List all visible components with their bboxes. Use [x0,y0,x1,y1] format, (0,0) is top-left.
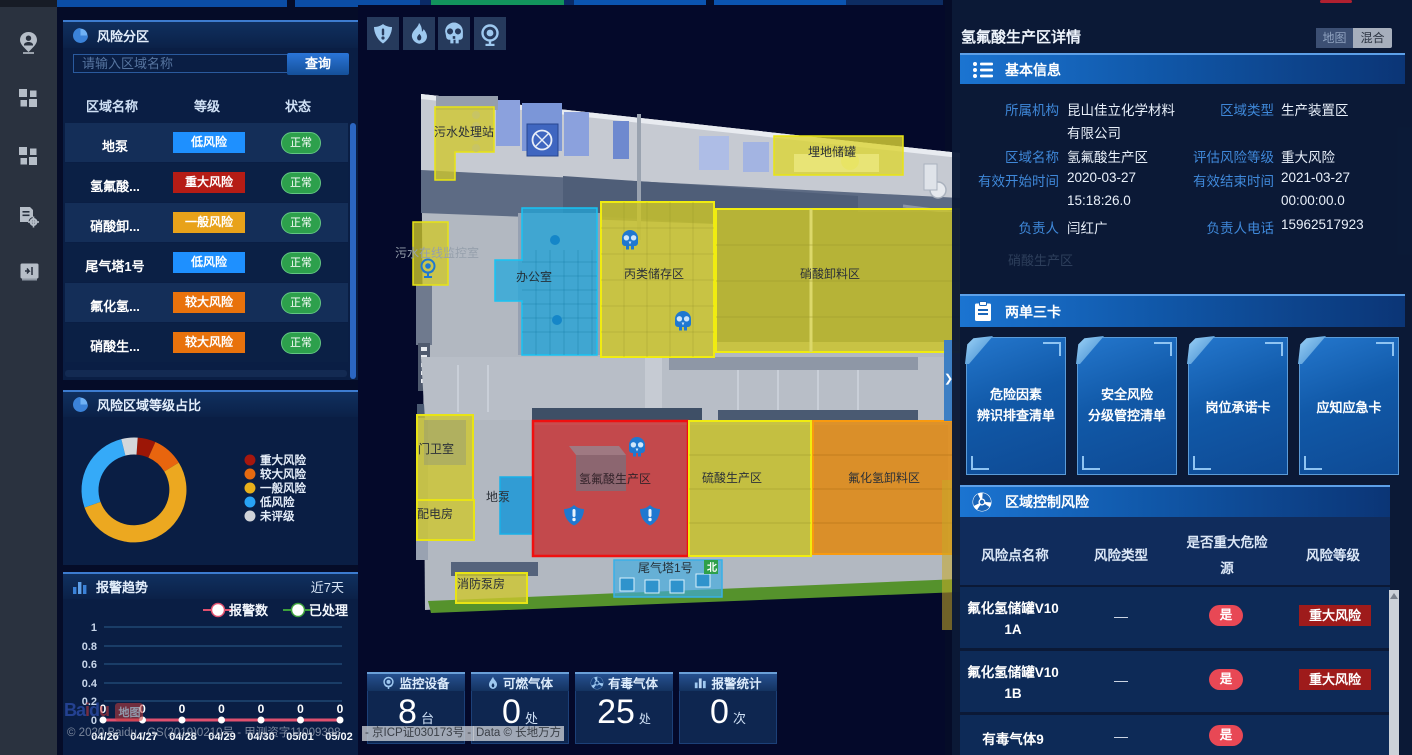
svg-text:较大风险: 较大风险 [260,467,306,481]
svg-text:未评级: 未评级 [259,509,295,523]
svg-text:0.8: 0.8 [82,641,97,653]
svg-text:低风险: 低风险 [259,495,295,509]
svg-text:消防泵房: 消防泵房 [457,576,505,591]
svg-text:一般风险: 一般风险 [260,481,306,495]
svg-text:硫酸生产区: 硫酸生产区 [702,470,762,485]
svg-text:丙类储存区: 丙类储存区 [624,266,684,281]
svg-text:污水处理站: 污水处理站 [434,125,494,139]
svg-text:氢氟酸生产区: 氢氟酸生产区 [579,471,651,486]
svg-text:0: 0 [337,702,344,716]
svg-text:0: 0 [297,702,304,716]
svg-text:北: 北 [707,561,717,574]
svg-text:氟化氢卸料区: 氟化氢卸料区 [848,470,920,485]
svg-text:地泵: 地泵 [486,490,510,504]
svg-text:配电房: 配电房 [417,506,453,521]
svg-text:0: 0 [218,702,225,716]
svg-text:已处理: 已处理 [309,603,348,618]
svg-text:0.6: 0.6 [82,659,97,671]
svg-text:硝酸卸料区: 硝酸卸料区 [800,266,860,281]
svg-text:尾气塔1号: 尾气塔1号 [638,560,693,575]
svg-text:0: 0 [258,702,265,716]
svg-text:0.4: 0.4 [82,678,98,690]
svg-text:污水在线监控室: 污水在线监控室 [395,245,479,260]
svg-text:办公室: 办公室 [516,269,552,284]
svg-text:埋地储罐: 埋地储罐 [808,144,856,159]
svg-text:门卫室: 门卫室 [418,441,454,456]
svg-text:重大风险: 重大风险 [260,453,306,467]
svg-text:0: 0 [179,702,186,716]
svg-text:报警数: 报警数 [229,603,269,618]
svg-text:1: 1 [91,622,97,634]
